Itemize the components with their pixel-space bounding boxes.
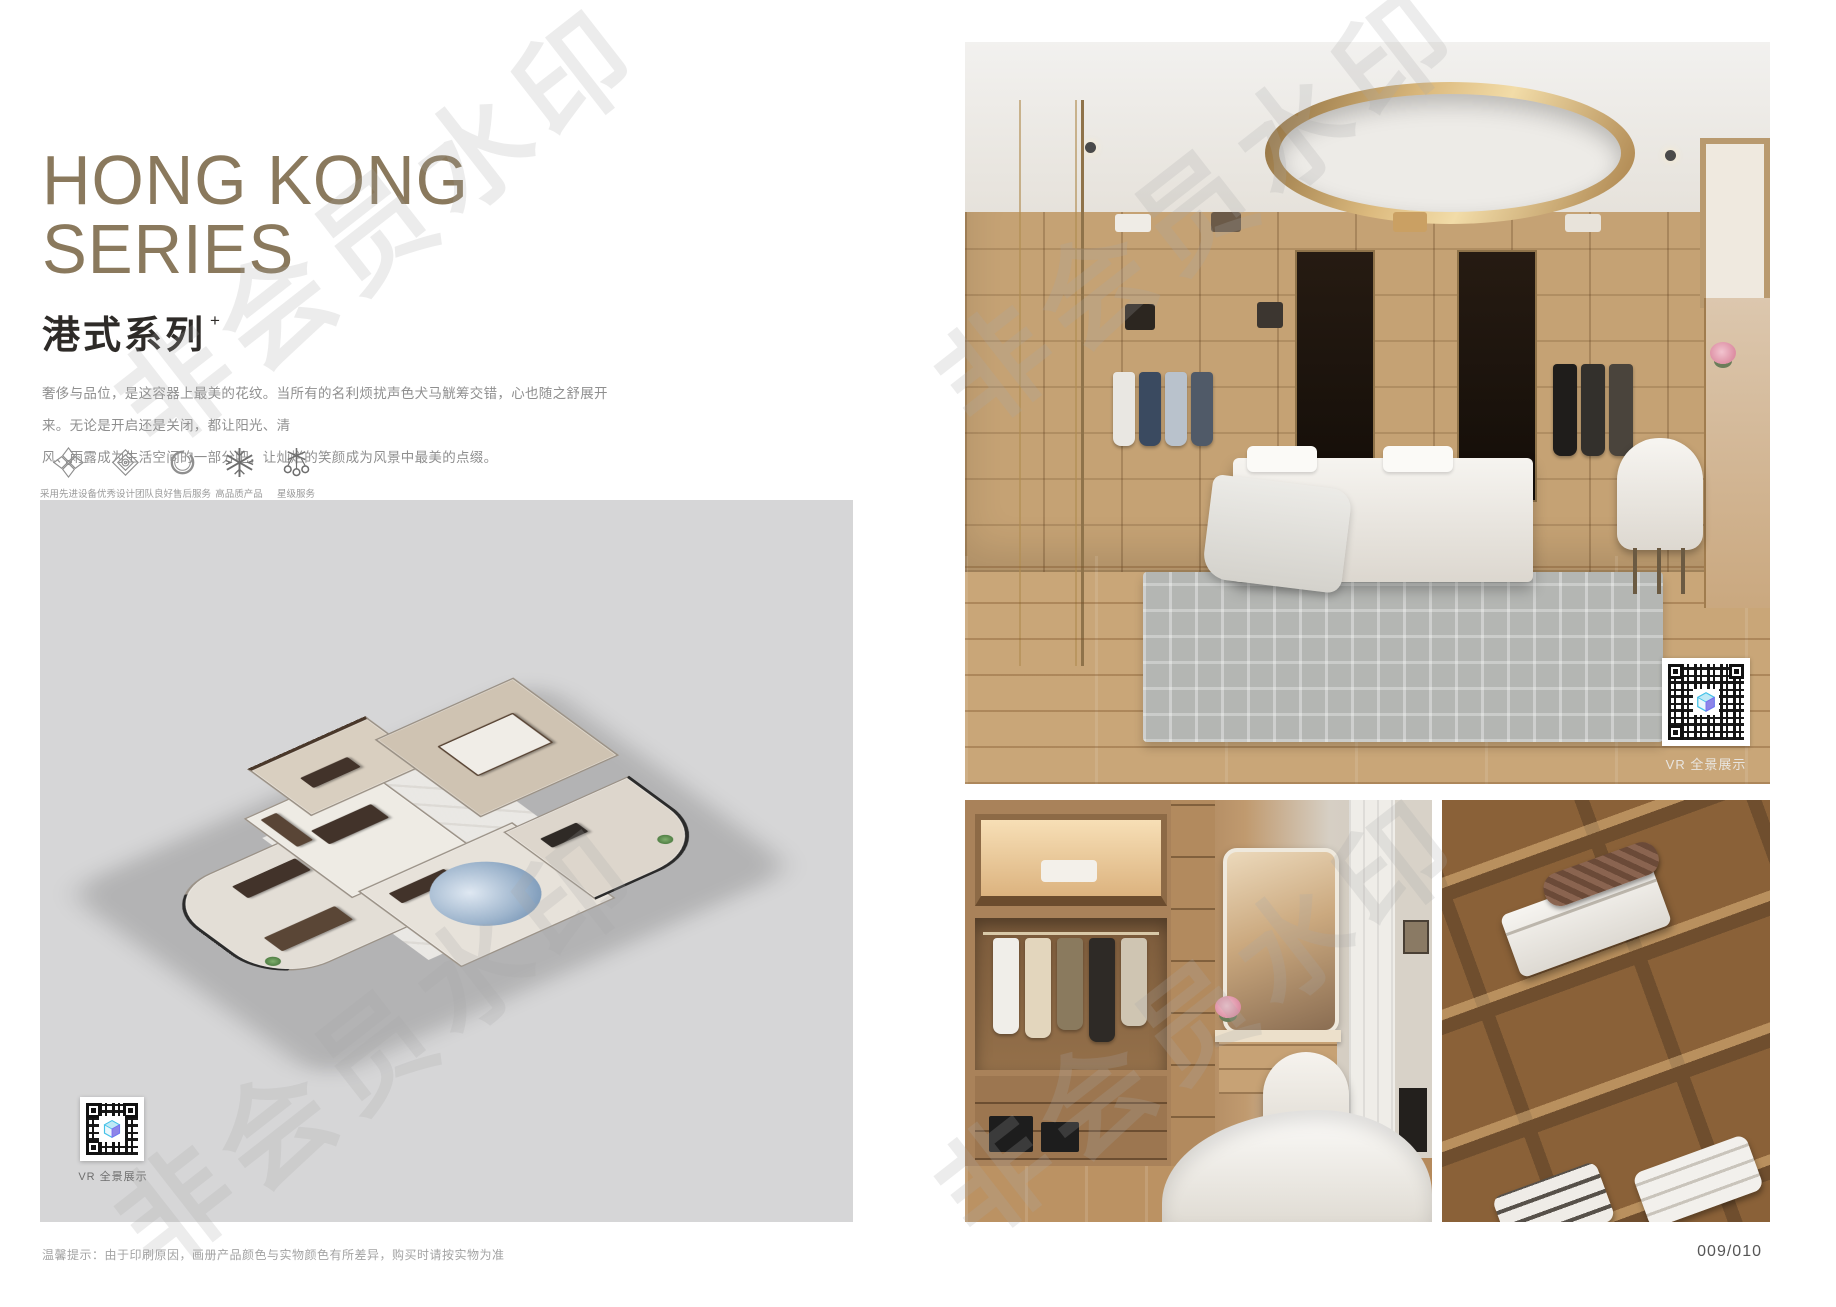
- folded-towels: [1565, 214, 1601, 232]
- hanging-garment: [1057, 938, 1083, 1030]
- floorplan-vr-label: VR 全景展示: [58, 1168, 168, 1184]
- wall-picture: [1403, 920, 1429, 954]
- description-line1: 奢侈与品位，是这容器上最美的花纹。当所有的名利烦扰声色犬马觥筹交错，心也随之舒展…: [42, 378, 610, 442]
- sofa: [232, 858, 311, 898]
- feature-item-after-sales: 良好售后服务: [154, 446, 210, 500]
- hanging-shirt: [1165, 372, 1187, 446]
- walkin-closet-photo: VR 全景展示: [965, 42, 1770, 784]
- photo-vr-label: VR 全景展示: [1651, 754, 1761, 773]
- pink-flowers: [1710, 342, 1736, 364]
- wardrobe-shelf-grid: [1442, 800, 1770, 1222]
- feature-item-quality: 高品质产品: [211, 446, 267, 500]
- hanging-shirt: [1113, 372, 1135, 446]
- feature-item-star-service: 星级服务: [268, 446, 324, 500]
- hanging-coat: [1609, 364, 1633, 456]
- series-title-line2: SERIES: [42, 215, 469, 284]
- storage-box: [1393, 212, 1427, 232]
- bag: [1125, 304, 1155, 330]
- star-service-icon: [280, 446, 313, 479]
- tv-cabinet: [264, 906, 353, 951]
- ceiling-spotlight: [1665, 150, 1676, 161]
- pillow: [1383, 446, 1453, 472]
- patterned-sweater-stack: [1491, 1161, 1616, 1222]
- hanging-clothes-section: [975, 918, 1167, 1070]
- hanging-garment: [1121, 938, 1147, 1026]
- qr-finder: [86, 1140, 101, 1155]
- feature-item-equipment: 采用先进设备: [40, 446, 96, 500]
- feature-label: 高品质产品: [211, 486, 267, 500]
- bed-ottoman: [1233, 458, 1533, 582]
- shelf-closeup-photo: [1442, 800, 1770, 1222]
- petal-ornament-icon: [52, 446, 85, 479]
- hanging-shirt: [1139, 372, 1161, 446]
- vr-cube-logo: [99, 1116, 125, 1142]
- qr-finder: [123, 1103, 138, 1118]
- vanity-mirror: [1700, 138, 1770, 308]
- feature-item-design-team: 优秀设计团队: [97, 446, 153, 500]
- feature-label: 星级服务: [268, 486, 324, 500]
- drawer-stack: [975, 1076, 1167, 1160]
- desk: [300, 757, 361, 788]
- hanging-shirt: [1191, 372, 1213, 446]
- feature-label: 采用先进设备: [40, 486, 96, 500]
- vanity-top: [1215, 1030, 1341, 1042]
- ceiling-spotlight: [1085, 142, 1096, 153]
- black-storage-box: [1041, 1122, 1079, 1152]
- catalog-page: HONG KONG SERIES 港式系列+ 奢侈与品位，是这容器上最美的花纹。…: [0, 0, 1836, 1307]
- folded-item: [1041, 860, 1097, 882]
- hanging-coat: [1553, 364, 1577, 456]
- qr-finder: [1729, 664, 1744, 679]
- qr-finder: [1668, 664, 1683, 679]
- hanging-garment: [1025, 938, 1051, 1038]
- handbag: [1211, 212, 1241, 232]
- clothes-rail: [983, 932, 1159, 935]
- qr-pattern: [1668, 664, 1744, 740]
- feature-label: 优秀设计团队: [97, 486, 153, 500]
- floorplan-panel: VR 全景展示: [40, 500, 853, 1222]
- qr-finder: [1668, 725, 1683, 740]
- series-title: HONG KONG SERIES: [42, 146, 469, 284]
- floorplan-qr-code: [80, 1097, 144, 1161]
- black-storage-box: [989, 1116, 1033, 1152]
- snowflake-icon: [223, 446, 256, 479]
- plus-mark: +: [210, 311, 223, 330]
- hanging-shirt: [993, 938, 1019, 1034]
- plant: [262, 955, 284, 968]
- ring-icon: [166, 446, 199, 479]
- bed: [437, 713, 553, 777]
- vr-cube-logo: [1693, 689, 1719, 715]
- series-title-line1: HONG KONG: [42, 146, 469, 215]
- pillow: [1247, 446, 1317, 472]
- feature-list: 采用先进设备 优秀设计团队 良好售后服务 高品质产品: [40, 446, 325, 500]
- lounge-chair: [540, 823, 589, 848]
- chair-legs: [1633, 548, 1689, 594]
- diamond-ornament-icon: [109, 446, 142, 479]
- photo-qr-code: [1662, 658, 1750, 746]
- throw-blanket: [1201, 474, 1353, 594]
- series-subtitle-cn: 港式系列+: [42, 304, 223, 359]
- balcony-plant: [654, 833, 676, 846]
- folded-towels: [1115, 214, 1151, 232]
- gray-rug: [1143, 572, 1663, 742]
- hanging-coat: [1089, 938, 1115, 1042]
- dressing-area-photo: [965, 800, 1432, 1222]
- page-number: 009/010: [1697, 1243, 1762, 1261]
- folded-sweater-stack: [1632, 1134, 1765, 1222]
- lit-display-niche: [975, 814, 1167, 906]
- pink-flowers: [1215, 996, 1241, 1018]
- feature-label: 良好售后服务: [154, 486, 210, 500]
- qr-pattern: [86, 1103, 138, 1155]
- footer-notice: 温馨提示：由于印刷原因，画册产品颜色与实物颜色有所差异，购买时请按实物为准: [42, 1246, 505, 1263]
- ceiling-gold-ring: [1265, 82, 1635, 224]
- white-chair: [1617, 438, 1703, 550]
- hanging-coat: [1581, 364, 1605, 456]
- bag: [1257, 302, 1283, 328]
